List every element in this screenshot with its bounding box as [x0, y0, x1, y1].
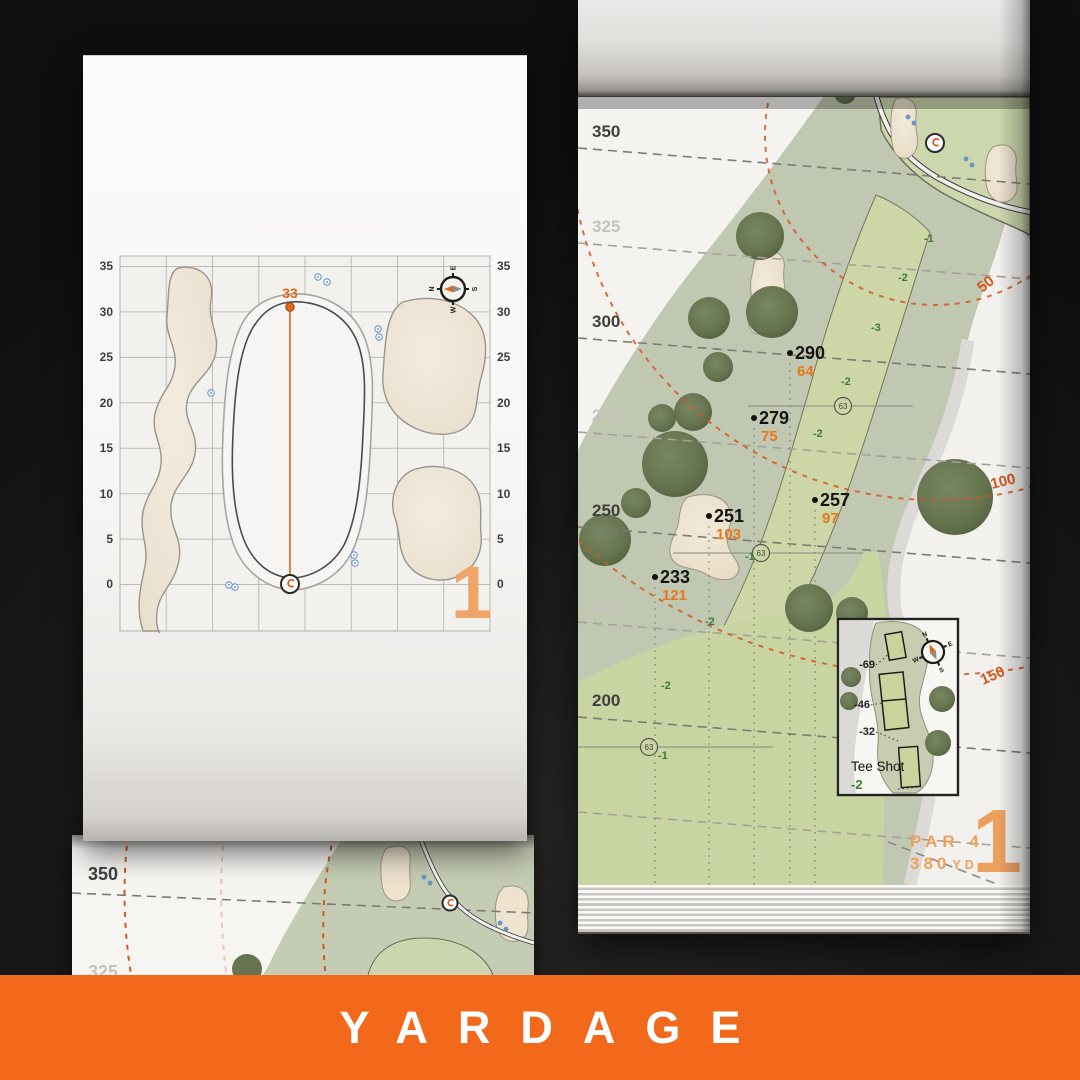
compass-w: W: [451, 306, 458, 313]
flipped-page-back: [578, 0, 1030, 97]
pin-marker: [926, 134, 944, 152]
tick-label: 15: [100, 441, 114, 455]
carry-distance: 290: [795, 343, 825, 363]
tick-label: 10: [100, 487, 114, 501]
compass-e: E: [451, 265, 458, 270]
tick-label: 10: [497, 487, 511, 501]
green-detail-map: 35 30 25 20 15 10 5 0 35 30 25 20 15 10 …: [83, 56, 527, 841]
tick-label: 30: [100, 305, 114, 319]
next-page-hole-map: 350 325: [72, 835, 534, 980]
tick-label: 35: [497, 259, 511, 273]
left-booklet-green-page: 35 30 25 20 15 10 5 0 35 30 25 20 15 10 …: [83, 55, 527, 841]
green-contours: [222, 294, 372, 590]
tee-shot-inset: -69 -46 -32 Tee Shot -2 N E S: [838, 619, 963, 795]
tick-label: 0: [497, 577, 504, 591]
yardage-label: 350: [592, 122, 620, 141]
flip-shadow: [578, 97, 1030, 109]
tick-label: 20: [497, 396, 511, 410]
sprinkler-label: 63: [757, 549, 766, 558]
yardage-label: 200: [592, 691, 620, 710]
left-booklet-next-page: 350 325: [72, 835, 534, 980]
right-booklet: 350 325 300 275 250 225 200 50 100 150: [578, 0, 1030, 932]
tick-label: 35: [100, 259, 114, 273]
tick-label: 25: [100, 350, 114, 364]
remaining-distance: 121: [662, 587, 687, 604]
carry-distance: 279: [759, 408, 789, 428]
pin-marker: [443, 896, 458, 911]
remaining-distance: 97: [822, 510, 839, 527]
tick-label: 30: [497, 305, 511, 319]
bunker: [985, 145, 1017, 202]
yardage-label: 275: [592, 406, 620, 425]
slope-number: -2: [813, 428, 823, 440]
compass-n: N: [429, 286, 436, 291]
sprinkler-label: 63: [645, 743, 654, 752]
page-stack-edges: [578, 885, 1030, 934]
hole-number: 1: [972, 792, 1022, 885]
carry-distance: 251: [714, 506, 744, 526]
tee-offset: -69: [859, 659, 875, 671]
pin-distance-label: 33: [282, 285, 298, 301]
tick-label: 20: [100, 396, 114, 410]
slope-number: -2: [841, 376, 851, 388]
carry-distance: 257: [820, 490, 850, 510]
tee-shot-title: Tee Shot: [851, 759, 905, 774]
carry-distance: 233: [660, 567, 690, 587]
hole-number: 1: [451, 551, 492, 634]
slope-number: -1: [658, 750, 668, 762]
green-entry-marker: [281, 575, 299, 593]
tee-slope: -2: [851, 777, 863, 792]
bunker-upper-right: [383, 299, 486, 435]
slope-number: -2: [898, 272, 908, 284]
remaining-distance: 103: [716, 526, 741, 543]
tick-label: 25: [497, 350, 511, 364]
distance-arc: [125, 835, 132, 980]
tee-offset: -32: [859, 726, 875, 738]
tick-label: 15: [497, 441, 511, 455]
yardage-label: 300: [592, 312, 620, 331]
tick-label: 0: [106, 577, 113, 591]
sprinkler-label: 63: [839, 402, 848, 411]
compass-s: S: [472, 286, 479, 291]
banner-title: YARDAGE: [310, 1002, 771, 1054]
slope-number: -1: [924, 233, 934, 245]
remaining-distance: 64: [797, 363, 814, 380]
tick-label: 5: [106, 532, 113, 546]
slope-number: -2: [661, 680, 671, 692]
slope-number: -3: [871, 322, 881, 334]
yardage-label: 350: [88, 864, 118, 884]
yardage-book-mockup: 350 325: [0, 0, 1080, 1080]
distance-value: 380: [910, 854, 950, 873]
remaining-distance: 75: [761, 428, 778, 445]
yardage-label: 225: [592, 596, 620, 615]
distance-arc: [221, 835, 227, 980]
yardage-banner: YARDAGE: [0, 975, 1080, 1080]
yardage-label: 325: [592, 217, 620, 236]
tee-offset: -46: [854, 699, 870, 711]
hole-map: 350 325 300 275 250 225 200 50 100 150: [578, 97, 1030, 885]
bunker: [381, 846, 410, 901]
slope-number: -1: [745, 551, 755, 563]
slope-number: -2: [705, 616, 715, 628]
yardage-label: 250: [592, 501, 620, 520]
pin-dot: [286, 303, 294, 311]
tick-label: 5: [497, 532, 504, 546]
